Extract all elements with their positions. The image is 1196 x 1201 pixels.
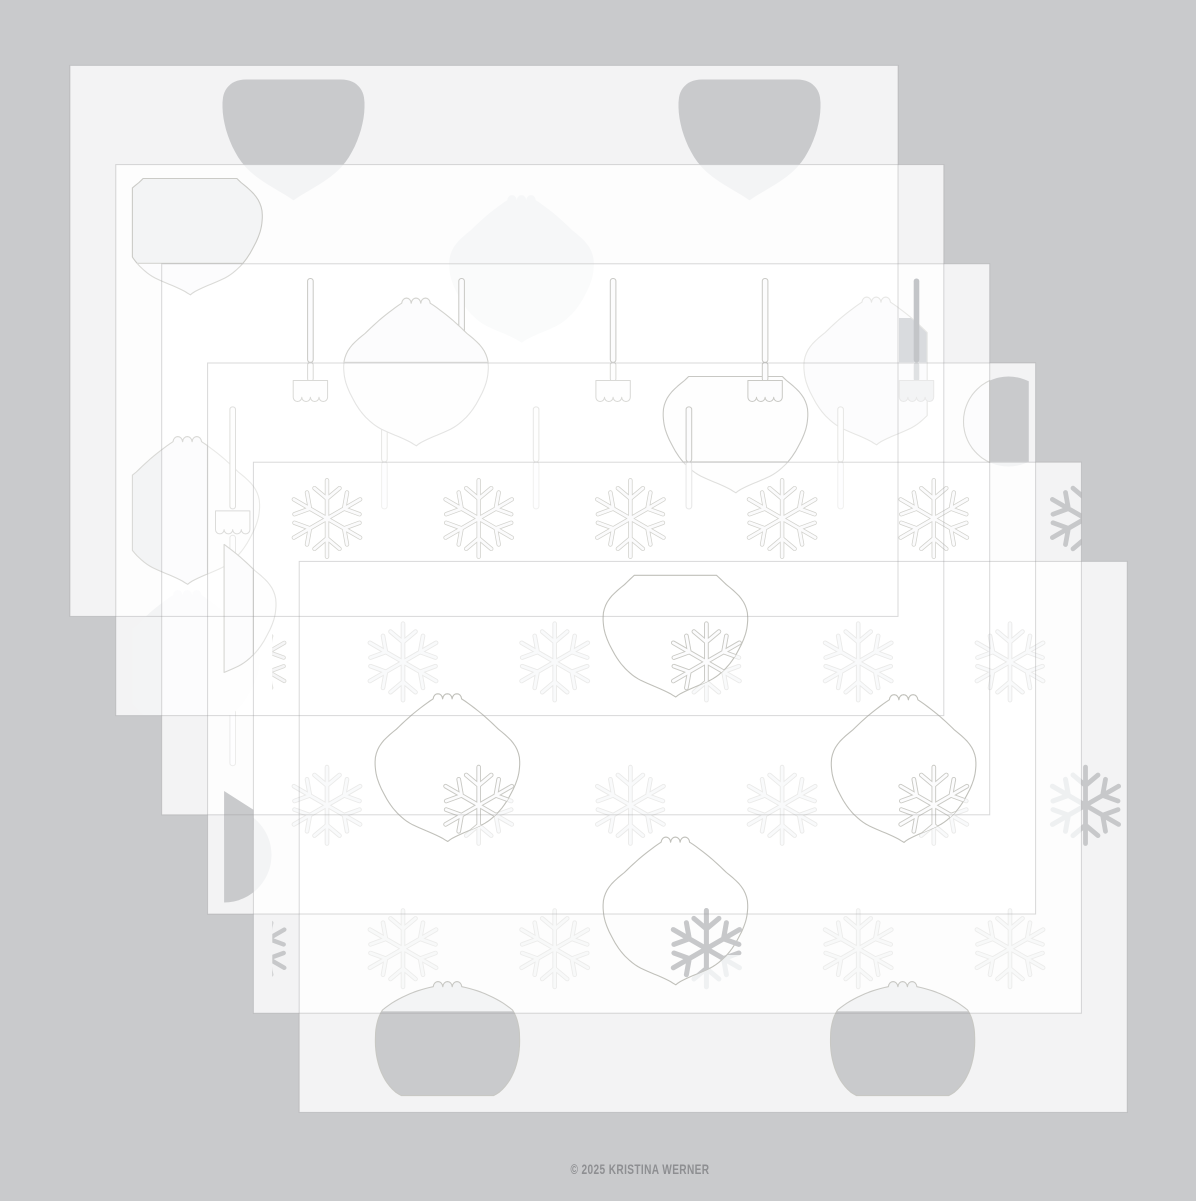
- svg-text:© 2025 KRISTINA WERNER: © 2025 KRISTINA WERNER: [571, 1162, 710, 1178]
